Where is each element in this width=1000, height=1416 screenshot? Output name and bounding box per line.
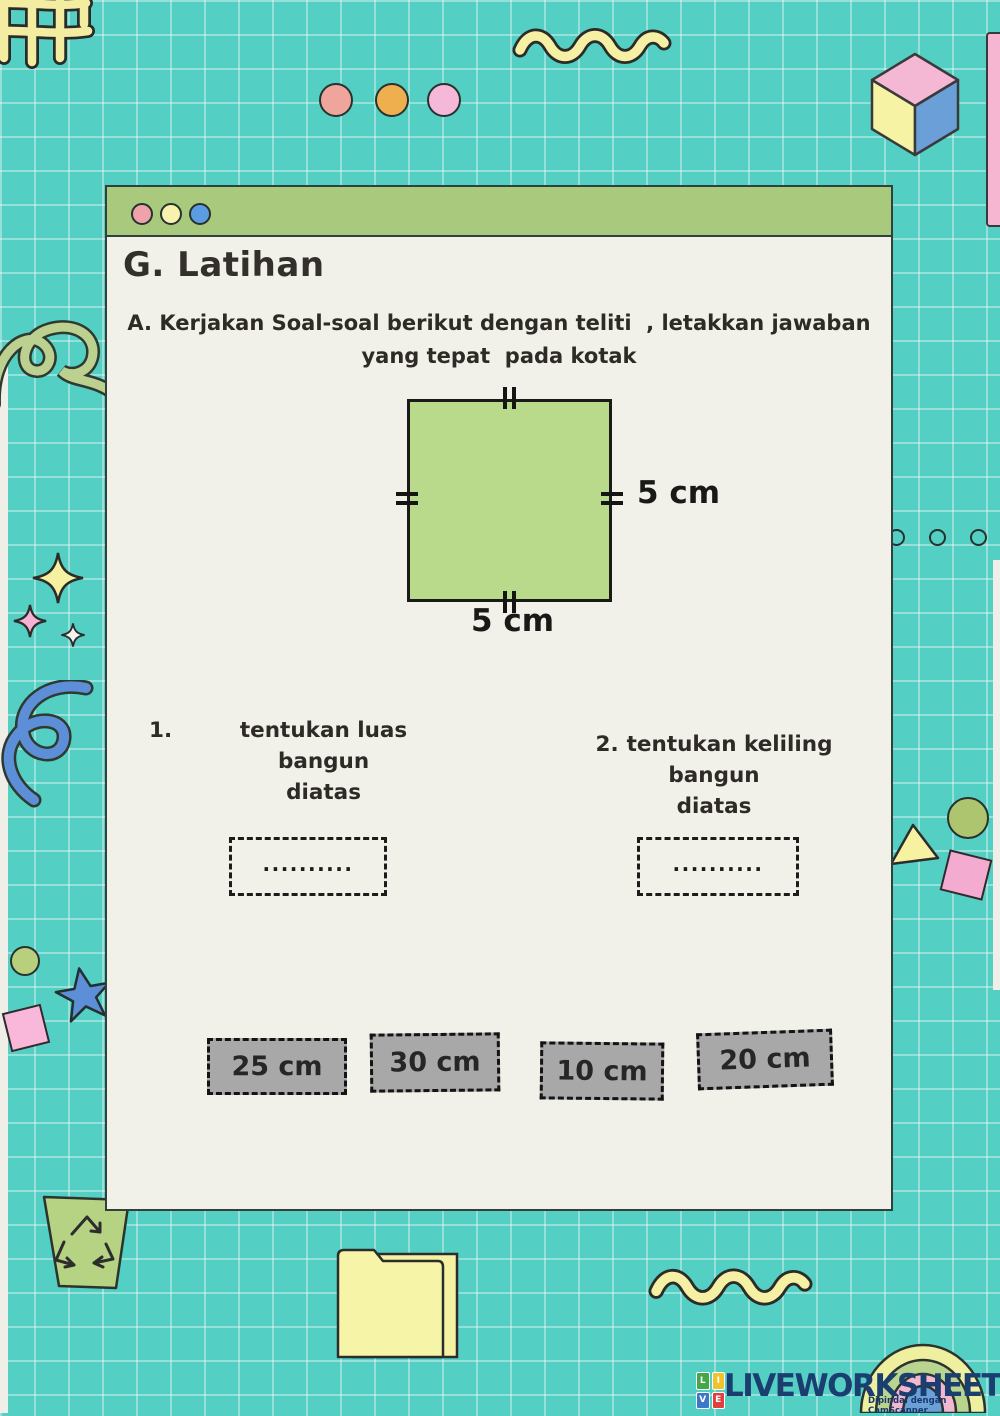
scan-edge-right <box>993 560 1000 990</box>
sparkle-pink-icon <box>12 603 48 639</box>
side-length-label-right: 5 cm <box>637 475 720 511</box>
logo-letter-i: I <box>712 1372 726 1390</box>
worksheet-card: G. Latihan A. Kerjakan Soal-soal berikut… <box>105 185 893 1211</box>
green-circle-left <box>10 946 40 976</box>
folder-icon <box>332 1240 462 1364</box>
answer-placeholder-dots: .......... <box>673 852 764 876</box>
window-dot-pink-icon <box>131 203 153 225</box>
tick-mark-top <box>512 387 516 409</box>
pink-square-right <box>940 849 993 900</box>
answer-option-label: 20 cm <box>719 1042 811 1076</box>
hash-grid-doodle <box>0 0 100 83</box>
answer-placeholder-dots: .......... <box>263 852 354 876</box>
squiggle-bottom-icon <box>648 1258 813 1316</box>
tick-mark-right <box>601 492 623 496</box>
cube-icon <box>868 52 963 157</box>
blue-loop-doodle <box>0 680 102 808</box>
logo-letter-e: E <box>712 1392 726 1410</box>
side-length-label-bottom: 5 cm <box>471 603 554 639</box>
answer-drop-box-2[interactable]: .......... <box>637 837 799 896</box>
instructions: A. Kerjakan Soal-soal berikut dengan tel… <box>107 307 891 372</box>
tick-mark-top <box>503 387 507 409</box>
logo-letter-l: L <box>696 1372 710 1390</box>
answer-drop-box-1[interactable]: .......... <box>229 837 387 896</box>
question-1-text2: diatas <box>198 777 449 808</box>
squiggle-top-icon <box>512 20 672 72</box>
green-loop-doodle <box>0 316 116 414</box>
answer-option-30cm[interactable]: 30 cm <box>370 1032 501 1092</box>
question-1-number: 1. <box>149 715 172 809</box>
green-circle-right <box>947 797 989 839</box>
scanner-watermark: Dipindai dengan CamScanner <box>868 1396 1000 1416</box>
question-2: 2.tentukan keliling bangun diatas <box>559 729 869 823</box>
answer-option-25cm[interactable]: 25 cm <box>207 1038 347 1095</box>
salmon-dot <box>319 83 353 117</box>
logo-letter-v: V <box>696 1392 710 1410</box>
instruction-line-2: yang tepat pada kotak <box>107 340 891 373</box>
question-1-text: tentukan luas bangun <box>198 715 449 777</box>
yellow-triangle-icon <box>886 820 944 870</box>
question-2-number: 2. <box>596 732 619 757</box>
scan-edge-left <box>0 352 8 1413</box>
outline-dot-2 <box>929 529 946 546</box>
answer-option-10cm[interactable]: 10 cm <box>540 1041 665 1100</box>
tick-mark-left <box>396 492 418 496</box>
pink-edge-shape <box>986 32 1000 227</box>
liveworksheets-logo-icon: L I V E <box>696 1372 725 1409</box>
pink-dot-deco <box>427 83 461 117</box>
tick-mark-left <box>396 501 418 505</box>
card-header-bar <box>107 187 891 237</box>
outline-dot-3 <box>970 529 987 546</box>
instruction-line-1: A. Kerjakan Soal-soal berikut dengan tel… <box>107 307 891 340</box>
page-title: G. Latihan <box>123 245 325 285</box>
question-2-text: tentukan keliling bangun <box>627 732 833 788</box>
answer-option-label: 25 cm <box>231 1051 322 1082</box>
answer-option-20cm[interactable]: 20 cm <box>696 1029 834 1091</box>
answer-option-label: 30 cm <box>389 1047 480 1079</box>
square-figure <box>407 399 612 602</box>
window-dot-yellow-icon <box>160 203 182 225</box>
sparkle-white-icon <box>60 622 86 648</box>
answer-option-label: 10 cm <box>556 1055 647 1087</box>
question-1: 1. tentukan luas bangun diatas <box>149 715 449 809</box>
orange-dot <box>375 83 409 117</box>
window-dot-blue-icon <box>189 203 211 225</box>
pink-square-left <box>2 1004 50 1052</box>
tick-mark-right <box>601 501 623 505</box>
question-2-text2: diatas <box>559 791 869 822</box>
sparkle-yellow-icon <box>30 550 86 606</box>
